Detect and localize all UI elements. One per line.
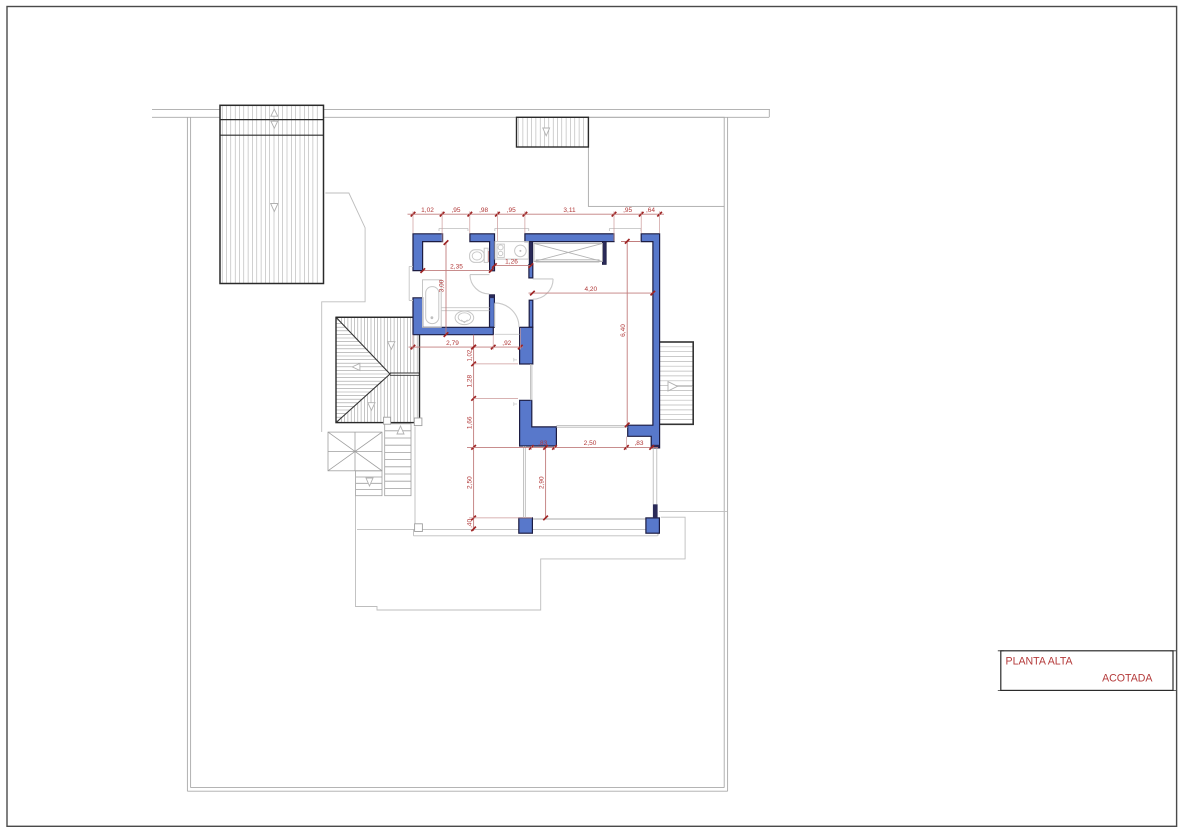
svg-text:,98: ,98 — [479, 207, 488, 214]
svg-text:,40: ,40 — [466, 519, 473, 528]
svg-text:1,26: 1,26 — [505, 258, 518, 265]
svg-text:6,40: 6,40 — [620, 324, 627, 337]
svg-text:2,90: 2,90 — [538, 476, 545, 489]
svg-text:3,11: 3,11 — [563, 207, 576, 214]
svg-text:,95: ,95 — [623, 207, 632, 214]
svg-text:,95: ,95 — [507, 207, 516, 214]
svg-text:,92: ,92 — [502, 340, 511, 347]
svg-text:ACOTADA: ACOTADA — [1102, 673, 1153, 685]
svg-text:2,50: 2,50 — [584, 440, 597, 447]
svg-text:3,00: 3,00 — [439, 279, 446, 292]
svg-text:1,66: 1,66 — [466, 416, 473, 429]
svg-text:1,28: 1,28 — [466, 374, 473, 387]
svg-text:2,79: 2,79 — [446, 340, 459, 347]
svg-text:,64: ,64 — [646, 207, 655, 214]
svg-text:2,50: 2,50 — [466, 476, 473, 489]
svg-text:,95: ,95 — [451, 207, 460, 214]
svg-text:2,35: 2,35 — [450, 263, 463, 270]
svg-text:1,02: 1,02 — [467, 349, 473, 361]
svg-text:1,02: 1,02 — [421, 207, 434, 214]
svg-text:PLANTA ALTA: PLANTA ALTA — [1006, 655, 1074, 667]
svg-text:4,20: 4,20 — [584, 286, 597, 293]
svg-text:,83: ,83 — [634, 440, 643, 447]
